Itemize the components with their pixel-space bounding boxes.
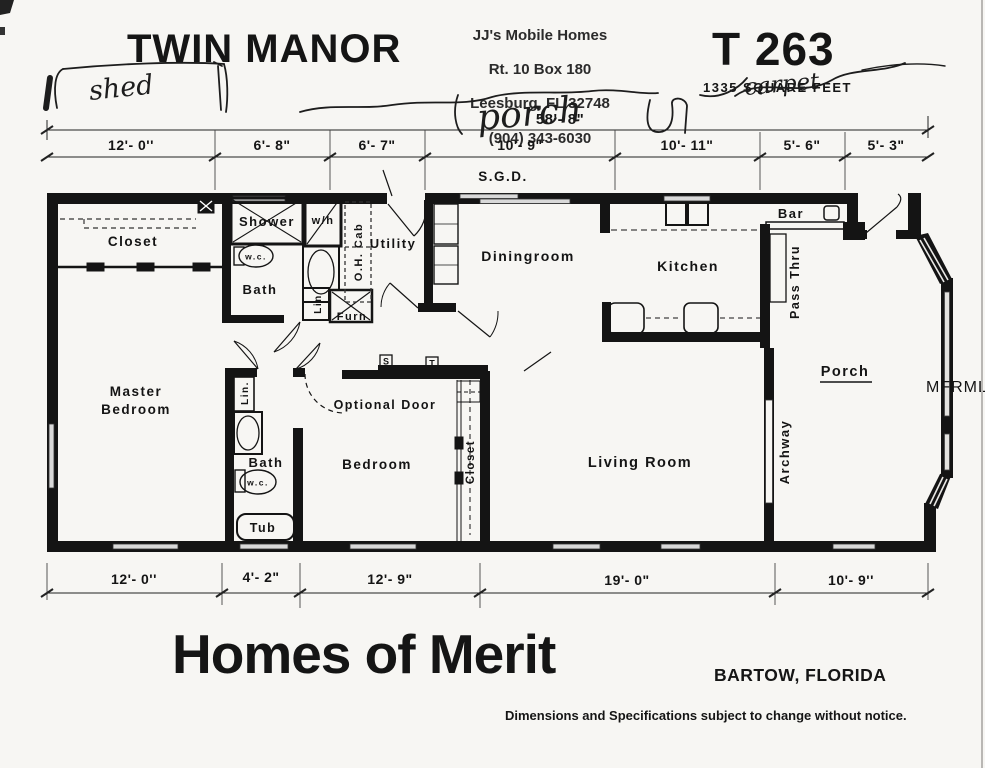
label-closet1: Closet bbox=[108, 234, 158, 249]
dim-top-4: 10'- 11" bbox=[661, 137, 714, 153]
dim-bottom-3: 19'- 0" bbox=[604, 572, 649, 588]
scan-artifacts bbox=[0, 0, 14, 35]
utility-shelving bbox=[434, 204, 458, 284]
label-closet2: Closet bbox=[465, 440, 477, 484]
label-kitchen: Kitchen bbox=[657, 258, 719, 274]
switch-t-label: T bbox=[429, 359, 435, 369]
note-porch: porch bbox=[475, 89, 583, 139]
dim-bottom-1: 4'- 2" bbox=[242, 569, 279, 585]
label-dining: Diningroom bbox=[481, 248, 575, 264]
label-optional-door: Optional Door bbox=[334, 398, 437, 412]
label-bar: Bar bbox=[778, 206, 804, 221]
label-furnace: Furn bbox=[337, 311, 367, 323]
label-living-room: Living Room bbox=[588, 455, 692, 471]
dim-bottom-2: 12'- 9" bbox=[367, 571, 412, 587]
label-shower: Shower bbox=[239, 214, 295, 229]
dim-top-3: 10'- 9" bbox=[497, 137, 542, 153]
label-bath2: Bath bbox=[249, 455, 284, 470]
exterior-walls bbox=[47, 193, 953, 552]
floor-plan-sheet: TWIN MANOR JJ's Mobile Homes Rt. 10 Box … bbox=[0, 0, 985, 768]
manufacturer-location: BARTOW, FLORIDA bbox=[714, 665, 886, 686]
label-archway: Archway bbox=[777, 420, 792, 485]
dim-bottom-4: 10'- 9'' bbox=[828, 572, 874, 588]
handwritten-words: shed porch carpet bbox=[87, 68, 821, 139]
dim-top-1: 6'- 8" bbox=[253, 137, 290, 153]
dim-top-5: 5'- 6" bbox=[783, 137, 820, 153]
label-pass-thru: Pass Thru bbox=[788, 245, 802, 319]
label-bedroom: Bedroom bbox=[342, 457, 412, 472]
note-shed: shed bbox=[87, 69, 154, 107]
label-tub: Tub bbox=[250, 521, 276, 535]
dim-top-0: 12'- 0'' bbox=[108, 137, 154, 153]
label-wc1: w.c. bbox=[244, 252, 267, 262]
dim-top-2: 6'- 7" bbox=[358, 137, 395, 153]
archway-opening bbox=[766, 400, 773, 503]
label-bath1: Bath bbox=[243, 282, 278, 297]
label-water-heater: w/h bbox=[311, 215, 335, 227]
label-wc2: w.c. bbox=[246, 478, 269, 488]
disclaimer: Dimensions and Specifications subject to… bbox=[505, 708, 907, 723]
scan-edge-line bbox=[981, 0, 983, 768]
label-oh-cab: O.H. Cab bbox=[353, 223, 365, 281]
label-master-2: Bedroom bbox=[101, 402, 171, 417]
manufacturer-brand: Homes of Merit bbox=[172, 622, 555, 686]
dim-top-6: 5'- 3" bbox=[867, 137, 904, 153]
label-master-1: Master bbox=[110, 384, 163, 399]
label-porch: Porch bbox=[821, 364, 870, 380]
label-sgd: S.G.D. bbox=[478, 169, 528, 184]
switch-s-label: S bbox=[383, 357, 389, 367]
mls-watermark: MFRMLS bbox=[926, 379, 985, 396]
dim-bottom-0: 12'- 0'' bbox=[111, 571, 157, 587]
label-lin2: Lin. bbox=[240, 381, 251, 405]
note-carpet: carpet bbox=[743, 68, 821, 101]
pass-thru-counter bbox=[770, 234, 786, 302]
label-lin1: Lin bbox=[313, 294, 324, 314]
label-utility: Utility bbox=[370, 236, 417, 251]
